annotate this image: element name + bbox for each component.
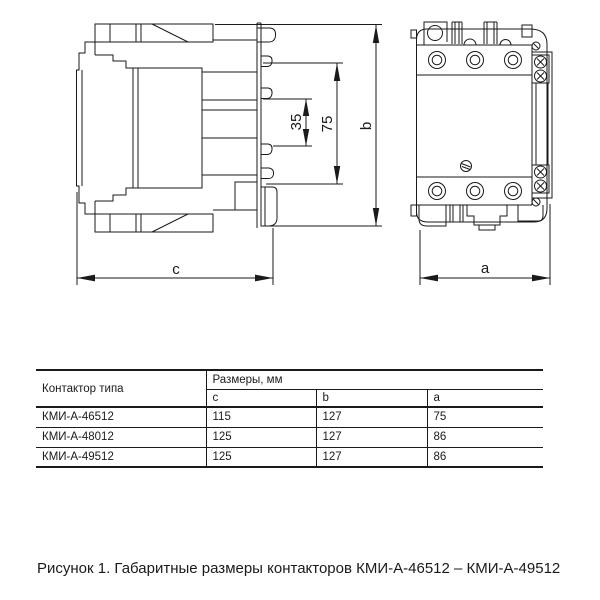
col-header-contactor-type: Контактор типа [36,370,206,407]
cell-b: 127 [316,447,427,467]
technical-drawing: c 35 75 [0,0,600,350]
mounting-hole [428,26,443,41]
table-row: КМИ-А-46512 115 127 75 [36,407,543,427]
cell-type: КМИ-А-48012 [36,427,206,447]
table-row: КМИ-А-49512 125 127 86 [36,447,543,467]
dim-label-b: b [358,122,375,130]
figure-caption: Рисунок 1. Габаритные размеры контакторо… [37,560,560,577]
col-group-header-dimensions: Размеры, мм [206,370,543,389]
dimension-a: a [420,204,550,285]
side-view-drawing [77,23,266,232]
col-header-a: a [427,389,543,407]
dim-label-a: a [481,260,490,277]
cell-type: КМИ-А-46512 [36,407,206,427]
cell-b: 127 [316,407,427,427]
dimensions-table: Контактор типа Размеры, мм c b a КМИ-А-4… [36,369,543,468]
dim-label-75: 75 [319,116,336,133]
col-header-c: c [206,389,316,407]
table-row: КМИ-А-48012 125 127 86 [36,427,543,447]
col-header-b: b [316,389,427,407]
dim-label-c: c [172,261,180,278]
terminal-screws [429,42,547,206]
dimension-35: 35 [263,99,312,146]
side-view-din-clips [152,24,277,232]
cell-type: КМИ-А-49512 [36,447,206,467]
table-header-row-1: Контактор типа Размеры, мм [36,370,543,389]
cell-a: 86 [427,447,543,467]
cell-b: 127 [316,427,427,447]
cell-c: 125 [206,447,316,467]
cell-c: 115 [206,407,316,427]
cell-a: 75 [427,407,543,427]
datasheet-page: c 35 75 [0,0,600,600]
dimension-c: c [77,192,273,285]
dim-label-35: 35 [288,114,305,131]
cell-a: 86 [427,427,543,447]
cell-c: 125 [206,427,316,447]
